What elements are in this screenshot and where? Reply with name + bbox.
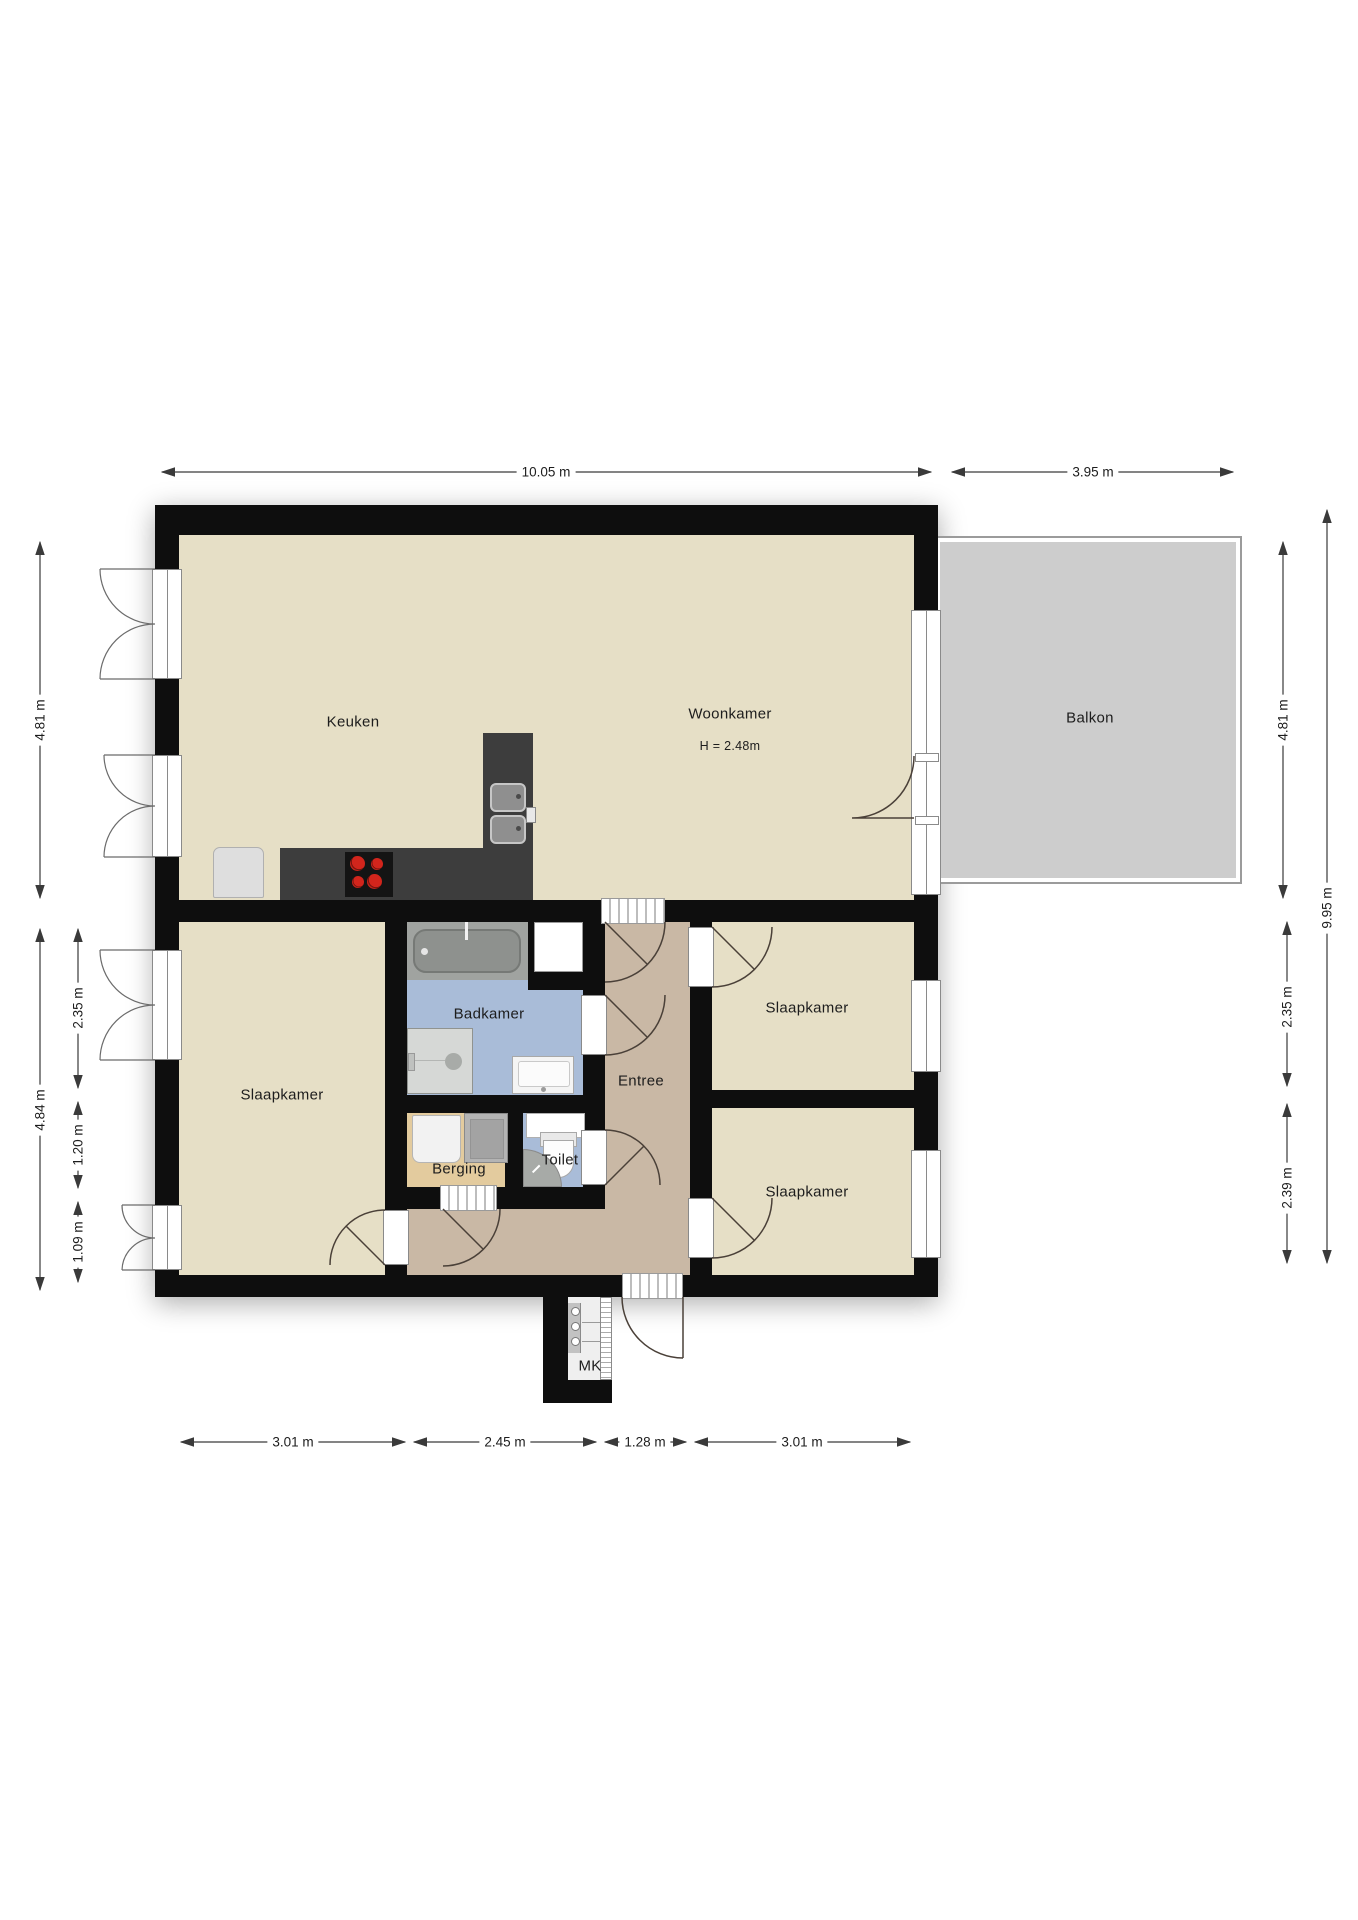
door-arc-balkon xyxy=(852,756,914,818)
french-door-arcs-slaapkamer-1 xyxy=(100,950,155,1060)
dim-right-balkon: 4.81 m xyxy=(1276,694,1291,745)
dim-bottom-seg-c: 1.28 m xyxy=(619,1435,670,1450)
dim-bottom-seg-a: 3.01 m xyxy=(267,1435,318,1450)
dim-bottom-seg-d: 3.01 m xyxy=(776,1435,827,1450)
dim-right-total: 9.95 m xyxy=(1320,882,1335,933)
door-arc-toilet xyxy=(605,1130,660,1185)
label-slaapkamer-rechtsboven: Slaapkamer xyxy=(765,1000,848,1017)
label-balkon: Balkon xyxy=(1066,710,1114,727)
label-slaapkamer-rechtsonder: Slaapkamer xyxy=(765,1184,848,1201)
door-arc-front-door xyxy=(622,1297,683,1358)
label-berging: Berging xyxy=(432,1161,486,1178)
dim-top-main: 10.05 m xyxy=(517,465,576,480)
door-arc-slaapkamer-rechtsboven xyxy=(712,927,772,987)
label-entree: Entree xyxy=(618,1073,664,1090)
french-door-arcs-keuken-2 xyxy=(104,755,155,857)
dim-left-bottom-block: 4.84 m xyxy=(33,1084,48,1135)
label-badkamer: Badkamer xyxy=(454,1006,525,1023)
label-keuken: Keuken xyxy=(327,714,380,731)
dim-right-seg-b: 2.39 m xyxy=(1280,1162,1295,1213)
label-woonkamer: Woonkamer xyxy=(688,706,771,723)
dim-left-seg-b: 1.20 m xyxy=(71,1119,86,1170)
annotation-layer xyxy=(0,0,1358,1920)
door-arc-slaapkamer-rechtsonder xyxy=(712,1198,772,1258)
label-woonkamer-height: H = 2.48m xyxy=(700,739,761,753)
label-mk: MK xyxy=(578,1358,601,1375)
dim-left-seg-a: 2.35 m xyxy=(71,982,86,1033)
french-door-arcs-keuken-1 xyxy=(100,569,155,679)
french-door-arcs-slaapkamer-2 xyxy=(122,1205,155,1270)
floorplan-canvas: Keuken Woonkamer H = 2.48m Balkon Slaapk… xyxy=(0,0,1358,1920)
dim-top-balkon: 3.95 m xyxy=(1067,465,1118,480)
dim-right-seg-a: 2.35 m xyxy=(1280,981,1295,1032)
door-arc-entree-woonkamer xyxy=(605,922,665,982)
door-arc-berging xyxy=(443,1209,500,1266)
label-slaapkamer-links: Slaapkamer xyxy=(240,1087,323,1104)
label-toilet: Toilet xyxy=(542,1152,579,1169)
dim-left-top-block: 4.81 m xyxy=(33,694,48,745)
door-arc-slaapkamer-links xyxy=(330,1210,385,1265)
dim-bottom-seg-b: 2.45 m xyxy=(479,1435,530,1450)
door-arc-badkamer xyxy=(605,995,665,1055)
dim-left-seg-c: 1.09 m xyxy=(71,1216,86,1267)
